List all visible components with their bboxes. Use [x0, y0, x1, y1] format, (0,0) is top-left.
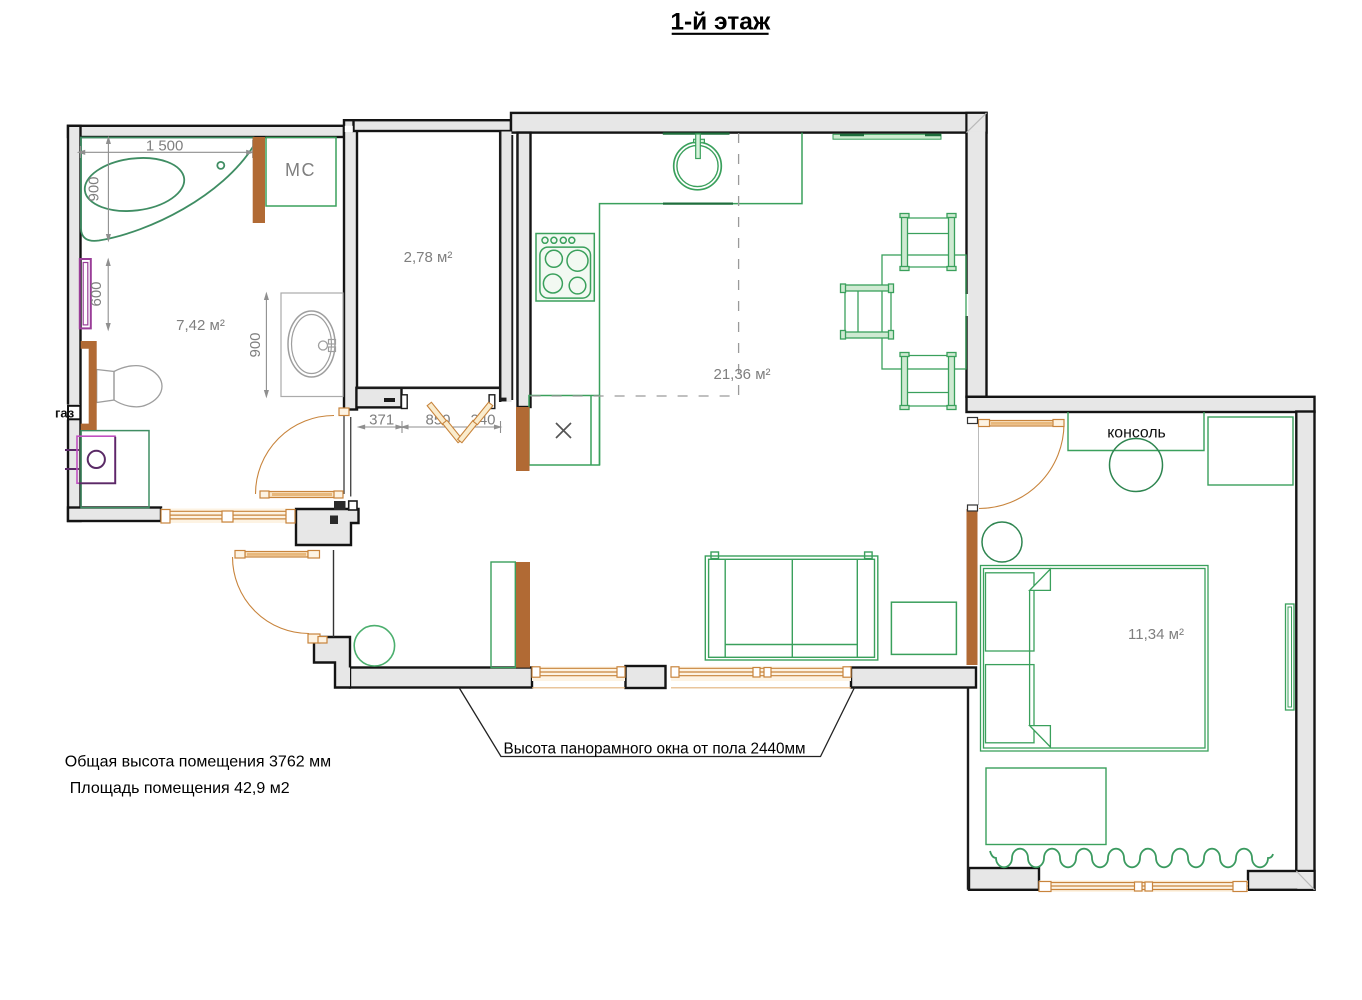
- svg-text:2,78 м²: 2,78 м²: [404, 249, 453, 266]
- svg-text:900: 900: [247, 332, 264, 357]
- svg-text:7,42 м²: 7,42 м²: [176, 317, 225, 334]
- svg-text:900: 900: [86, 176, 103, 201]
- svg-text:Общая высота помещения 3762 мм: Общая высота помещения 3762 мм: [65, 754, 331, 771]
- svg-text:1 500: 1 500: [146, 137, 184, 154]
- svg-text:371: 371: [369, 411, 394, 428]
- svg-text:1-й этаж: 1-й этаж: [670, 9, 770, 36]
- svg-text:Площадь помещения 42,9 м2: Площадь помещения 42,9 м2: [70, 780, 290, 797]
- svg-text:Высота панорамного окна от пол: Высота панорамного окна от пола 2440мм: [504, 741, 806, 758]
- svg-text:21,36 м²: 21,36 м²: [713, 366, 770, 383]
- svg-text:11,34 м²: 11,34 м²: [1128, 626, 1184, 643]
- svg-text:консоль: консоль: [1107, 425, 1166, 442]
- svg-text:МС: МС: [285, 160, 316, 180]
- svg-text:газ: газ: [55, 405, 75, 420]
- svg-text:600: 600: [88, 281, 105, 306]
